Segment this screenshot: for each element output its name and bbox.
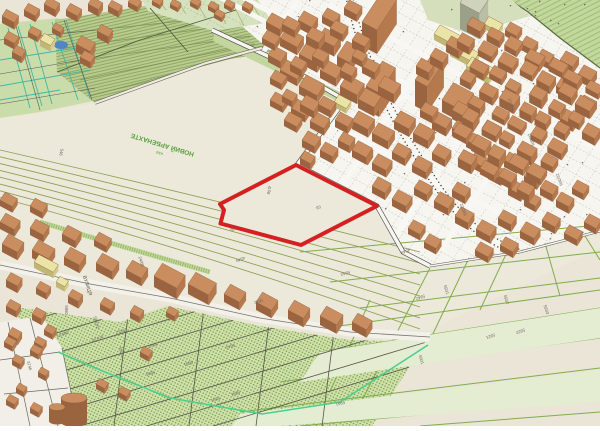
svg-text:5960: 5960 (64, 305, 69, 315)
